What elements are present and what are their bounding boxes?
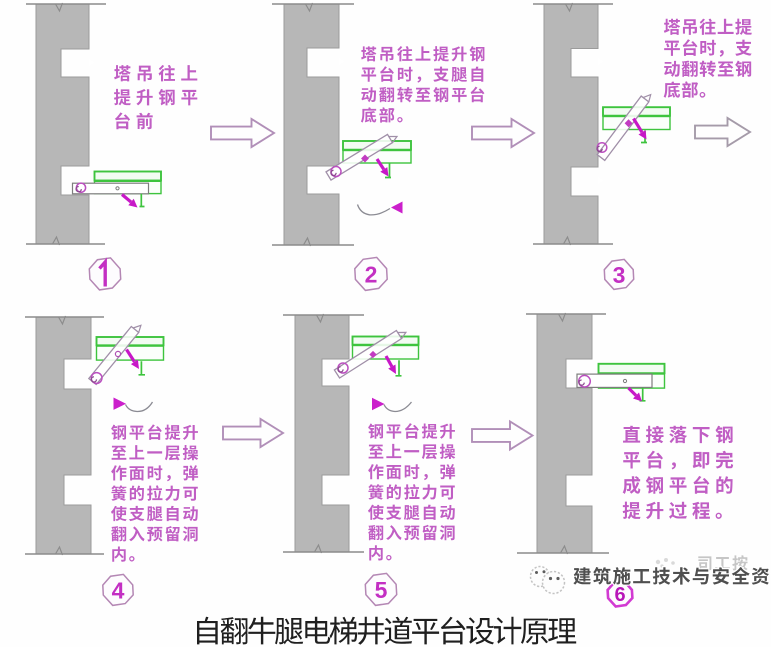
svg-text:2: 2 bbox=[365, 261, 378, 287]
svg-text:6: 6 bbox=[614, 584, 625, 606]
svg-text:5: 5 bbox=[375, 577, 388, 603]
svg-text:3: 3 bbox=[613, 262, 626, 288]
svg-text:4: 4 bbox=[112, 577, 125, 603]
